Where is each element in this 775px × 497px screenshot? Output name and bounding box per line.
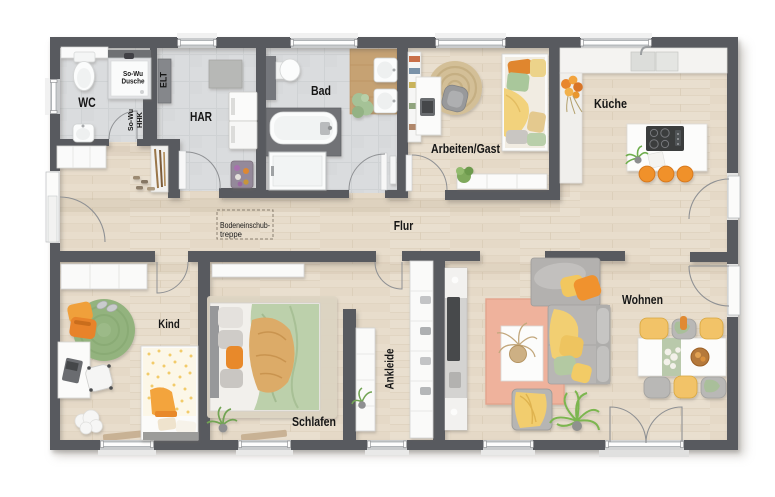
svg-text:HHK: HHK [135, 111, 144, 128]
svg-text:Arbeiten/Gast: Arbeiten/Gast [431, 142, 501, 156]
svg-text:treppe: treppe [220, 229, 242, 239]
svg-text:WC: WC [78, 94, 96, 110]
svg-text:So-Wu: So-Wu [126, 109, 135, 131]
svg-text:Dusche: Dusche [122, 77, 145, 86]
svg-text:ELT: ELT [159, 72, 169, 88]
svg-text:Küche: Küche [594, 97, 627, 111]
svg-text:Schlafen: Schlafen [292, 415, 336, 429]
svg-text:HAR: HAR [190, 109, 212, 124]
svg-text:Ankleide: Ankleide [385, 349, 397, 390]
svg-text:Kind: Kind [158, 317, 180, 331]
svg-text:Bad: Bad [311, 84, 331, 98]
svg-text:Wohnen: Wohnen [622, 293, 663, 307]
svg-text:Flur: Flur [394, 219, 414, 233]
